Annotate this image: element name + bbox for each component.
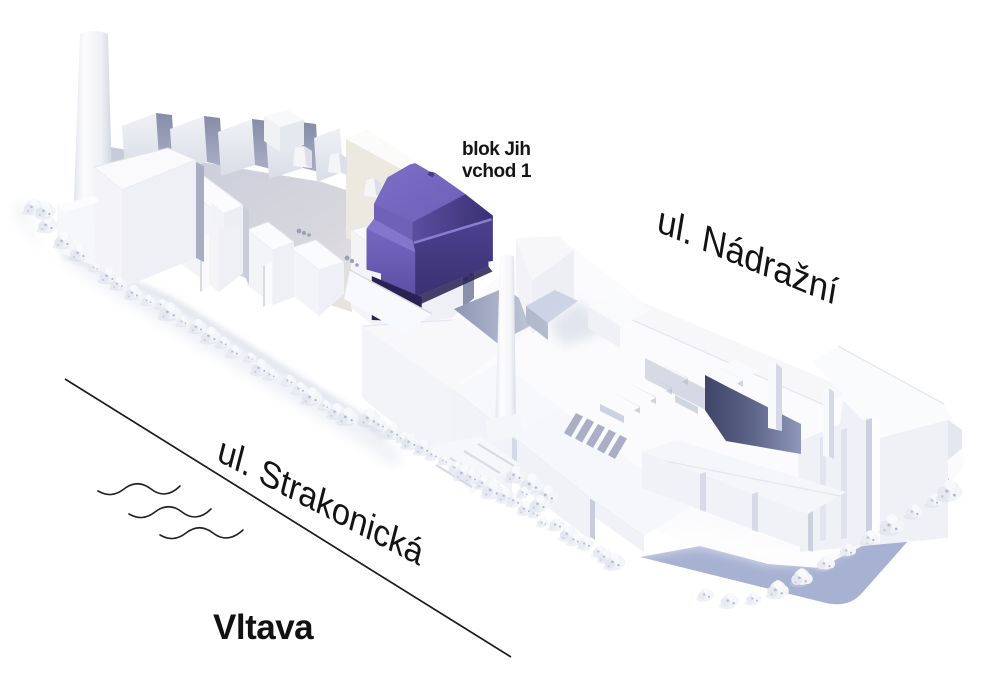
svg-text:Vltava: Vltava: [213, 608, 314, 647]
svg-text:vchod 1: vchod 1: [462, 161, 532, 182]
svg-text:blok Jih: blok Jih: [462, 139, 531, 160]
